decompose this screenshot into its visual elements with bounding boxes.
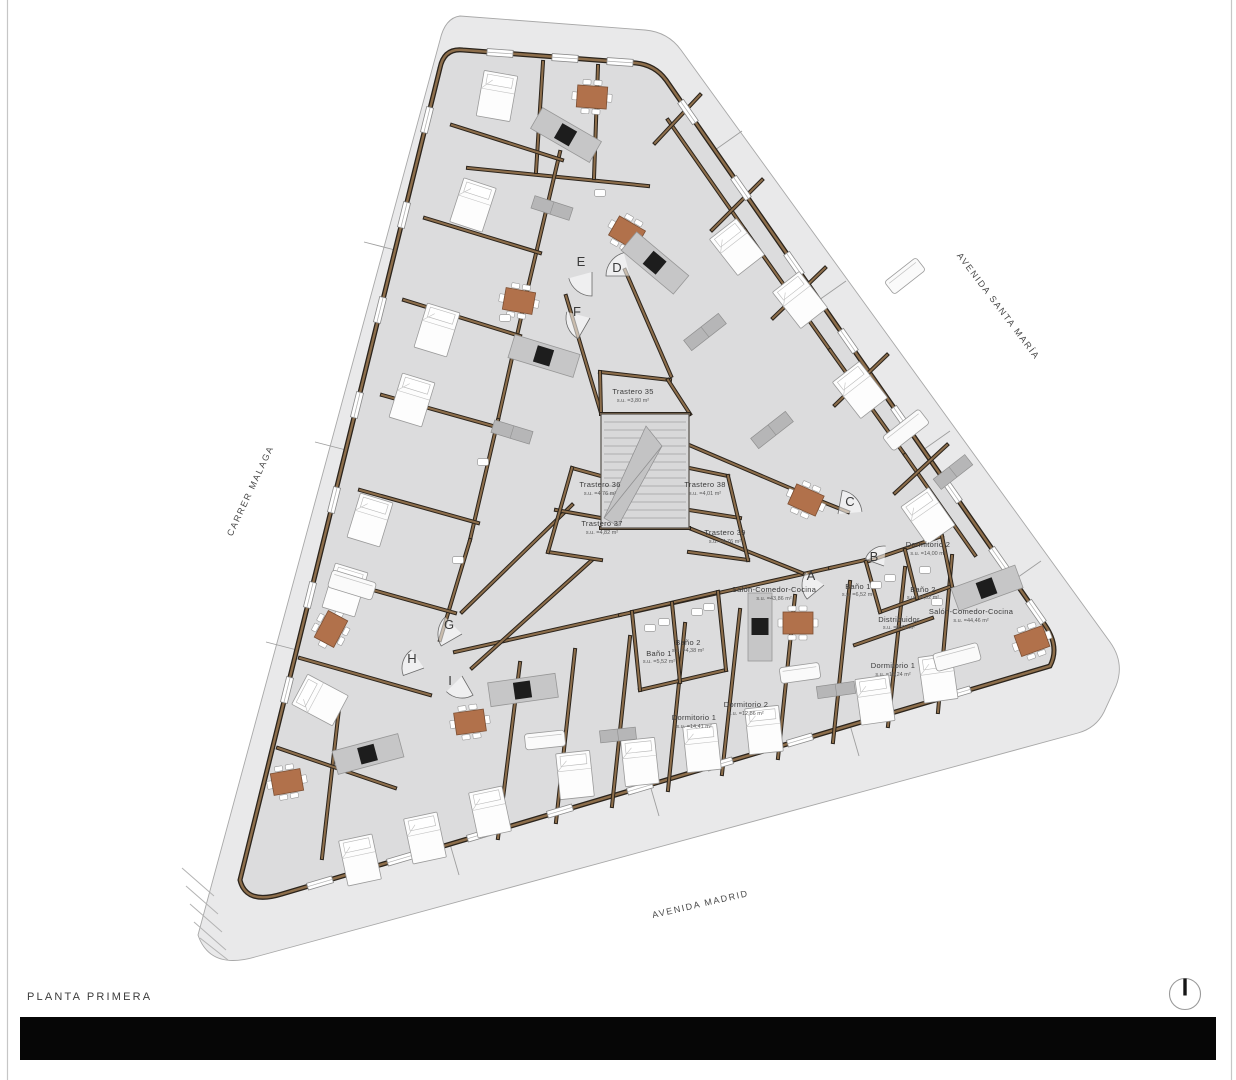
drawing-sheet: Trastero 35 s.u. =3,80 m² Trastero 36 s.… (0, 0, 1236, 1080)
room-label-bano1-a: Baño 1 (646, 649, 672, 658)
bed (621, 737, 660, 786)
bath-fixture (453, 557, 464, 564)
room-area-distribuidor-b: s.u. =5,79 m² (883, 625, 915, 631)
entrance-letter-b: B (870, 549, 879, 564)
room-label-dorm1-a: Dormitorio 1 (672, 713, 716, 722)
trastero-37-area: s.u. =4,82 m² (586, 530, 618, 536)
street-label-avenida-madrid: AVENIDA MADRID (651, 888, 749, 920)
bath-fixture (704, 604, 715, 611)
kitchen-island (748, 593, 772, 661)
room-area-dorm2-a: s.u. =12,86 m² (728, 711, 763, 717)
entrance-letter-a: A (807, 568, 816, 583)
room-area-dorm2-b: s.u. =14,00 m² (910, 551, 945, 557)
room-label-dorm2-b: Dormitorio 2 (906, 540, 950, 549)
room-label-bano2-b: Baño 2 (910, 585, 936, 594)
room-area-bano1-b: s.u. =6,52 m² (842, 592, 874, 598)
entrance-letter-c: C (845, 494, 854, 509)
trastero-39-area: s.u. =4,76 m² (709, 539, 741, 545)
bath-fixture (595, 190, 606, 197)
bath-fixture (920, 567, 931, 574)
bath-fixture (692, 609, 703, 616)
trastero-39-label: Trastero 39 (704, 528, 745, 537)
trastero-36-area: s.u. =4,76 m² (584, 491, 616, 497)
sofa (884, 257, 925, 294)
entrance-letter-i: I (448, 673, 452, 688)
bath-fixture (885, 575, 896, 582)
room-label-dorm2-a: Dormitorio 2 (724, 700, 768, 709)
entrance-letter-g: G (444, 617, 454, 632)
bath-fixture (871, 582, 882, 589)
window (487, 49, 513, 58)
entrance-letter-e: E (577, 254, 586, 269)
room-area-dorm1-a: s.u. =14,41 m² (676, 724, 711, 730)
room-label-bano1-b: Baño 1 (845, 582, 871, 591)
north-arrow-icon (1170, 979, 1201, 1010)
bath-fixture (659, 619, 670, 626)
entrance-letter-f: F (573, 304, 581, 319)
street-label-carrer-malaga: CARRER MALAGA (225, 444, 276, 538)
room-area-dorm1-b: s.u. =15,24 m² (875, 672, 910, 678)
trastero-35-label: Trastero 35 (612, 387, 653, 396)
window (607, 58, 633, 67)
bed (683, 723, 722, 772)
entrance-letter-h: H (407, 651, 416, 666)
trastero-37-label: Trastero 37 (581, 519, 622, 528)
staircase (601, 414, 689, 528)
room-area-salon-b: s.u. =44,46 m² (953, 618, 988, 624)
room-label-salon-a: Salón-Comedor-Cocina (732, 585, 817, 594)
trastero-38-area: s.u. =4,01 m² (689, 491, 721, 497)
trastero-35-area: s.u. =3,80 m² (617, 398, 649, 404)
floor-plan-svg: Trastero 35 s.u. =3,80 m² Trastero 36 s.… (0, 0, 1236, 1080)
title-bar (20, 1017, 1216, 1060)
window (552, 54, 578, 63)
bed (855, 675, 895, 725)
sheet-title: PLANTA PRIMERA (27, 991, 152, 1003)
street-label-avenida-santa-maria: AVENIDA SANTA MARÍA (955, 251, 1042, 362)
bath-fixture (500, 315, 511, 322)
entrance-letter-d: D (612, 260, 621, 275)
room-label-bano2-a: Baño 2 (675, 638, 701, 647)
bath-fixture (645, 625, 656, 632)
bed (556, 750, 595, 799)
room-area-bano2-a: s.u. =4,38 m² (672, 648, 704, 654)
room-area-salon-a: s.u. =43,86 m² (756, 596, 791, 602)
bath-fixture (478, 459, 489, 466)
room-area-bano1-a: s.u. =5,52 m² (643, 659, 675, 665)
room-label-distribuidor-b: Distribuidor (878, 615, 920, 624)
room-label-dorm1-b: Dormitorio 1 (871, 661, 915, 670)
trastero-38-label: Trastero 38 (684, 480, 725, 489)
room-label-salon-b: Salón-Comedor-Cocina (929, 607, 1014, 616)
room-area-bano2-b: s.u. =4,02 m² (907, 595, 939, 601)
trastero-36-label: Trastero 36 (579, 480, 620, 489)
